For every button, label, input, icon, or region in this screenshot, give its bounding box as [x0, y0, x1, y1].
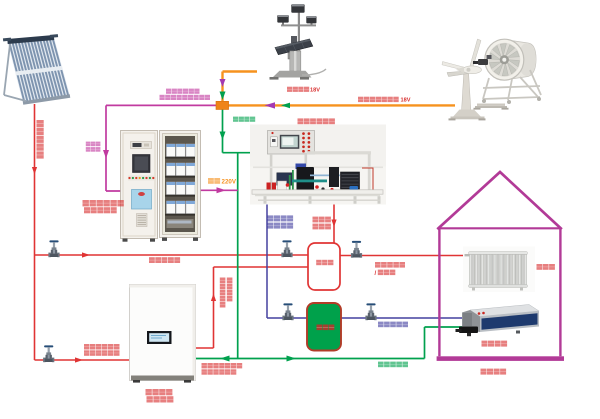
svg-text:18V: 18V	[401, 98, 411, 104]
svg-text:220V: 220V	[222, 178, 237, 185]
svg-text:/: /	[375, 271, 377, 277]
svg-text:18V: 18V	[310, 87, 320, 93]
